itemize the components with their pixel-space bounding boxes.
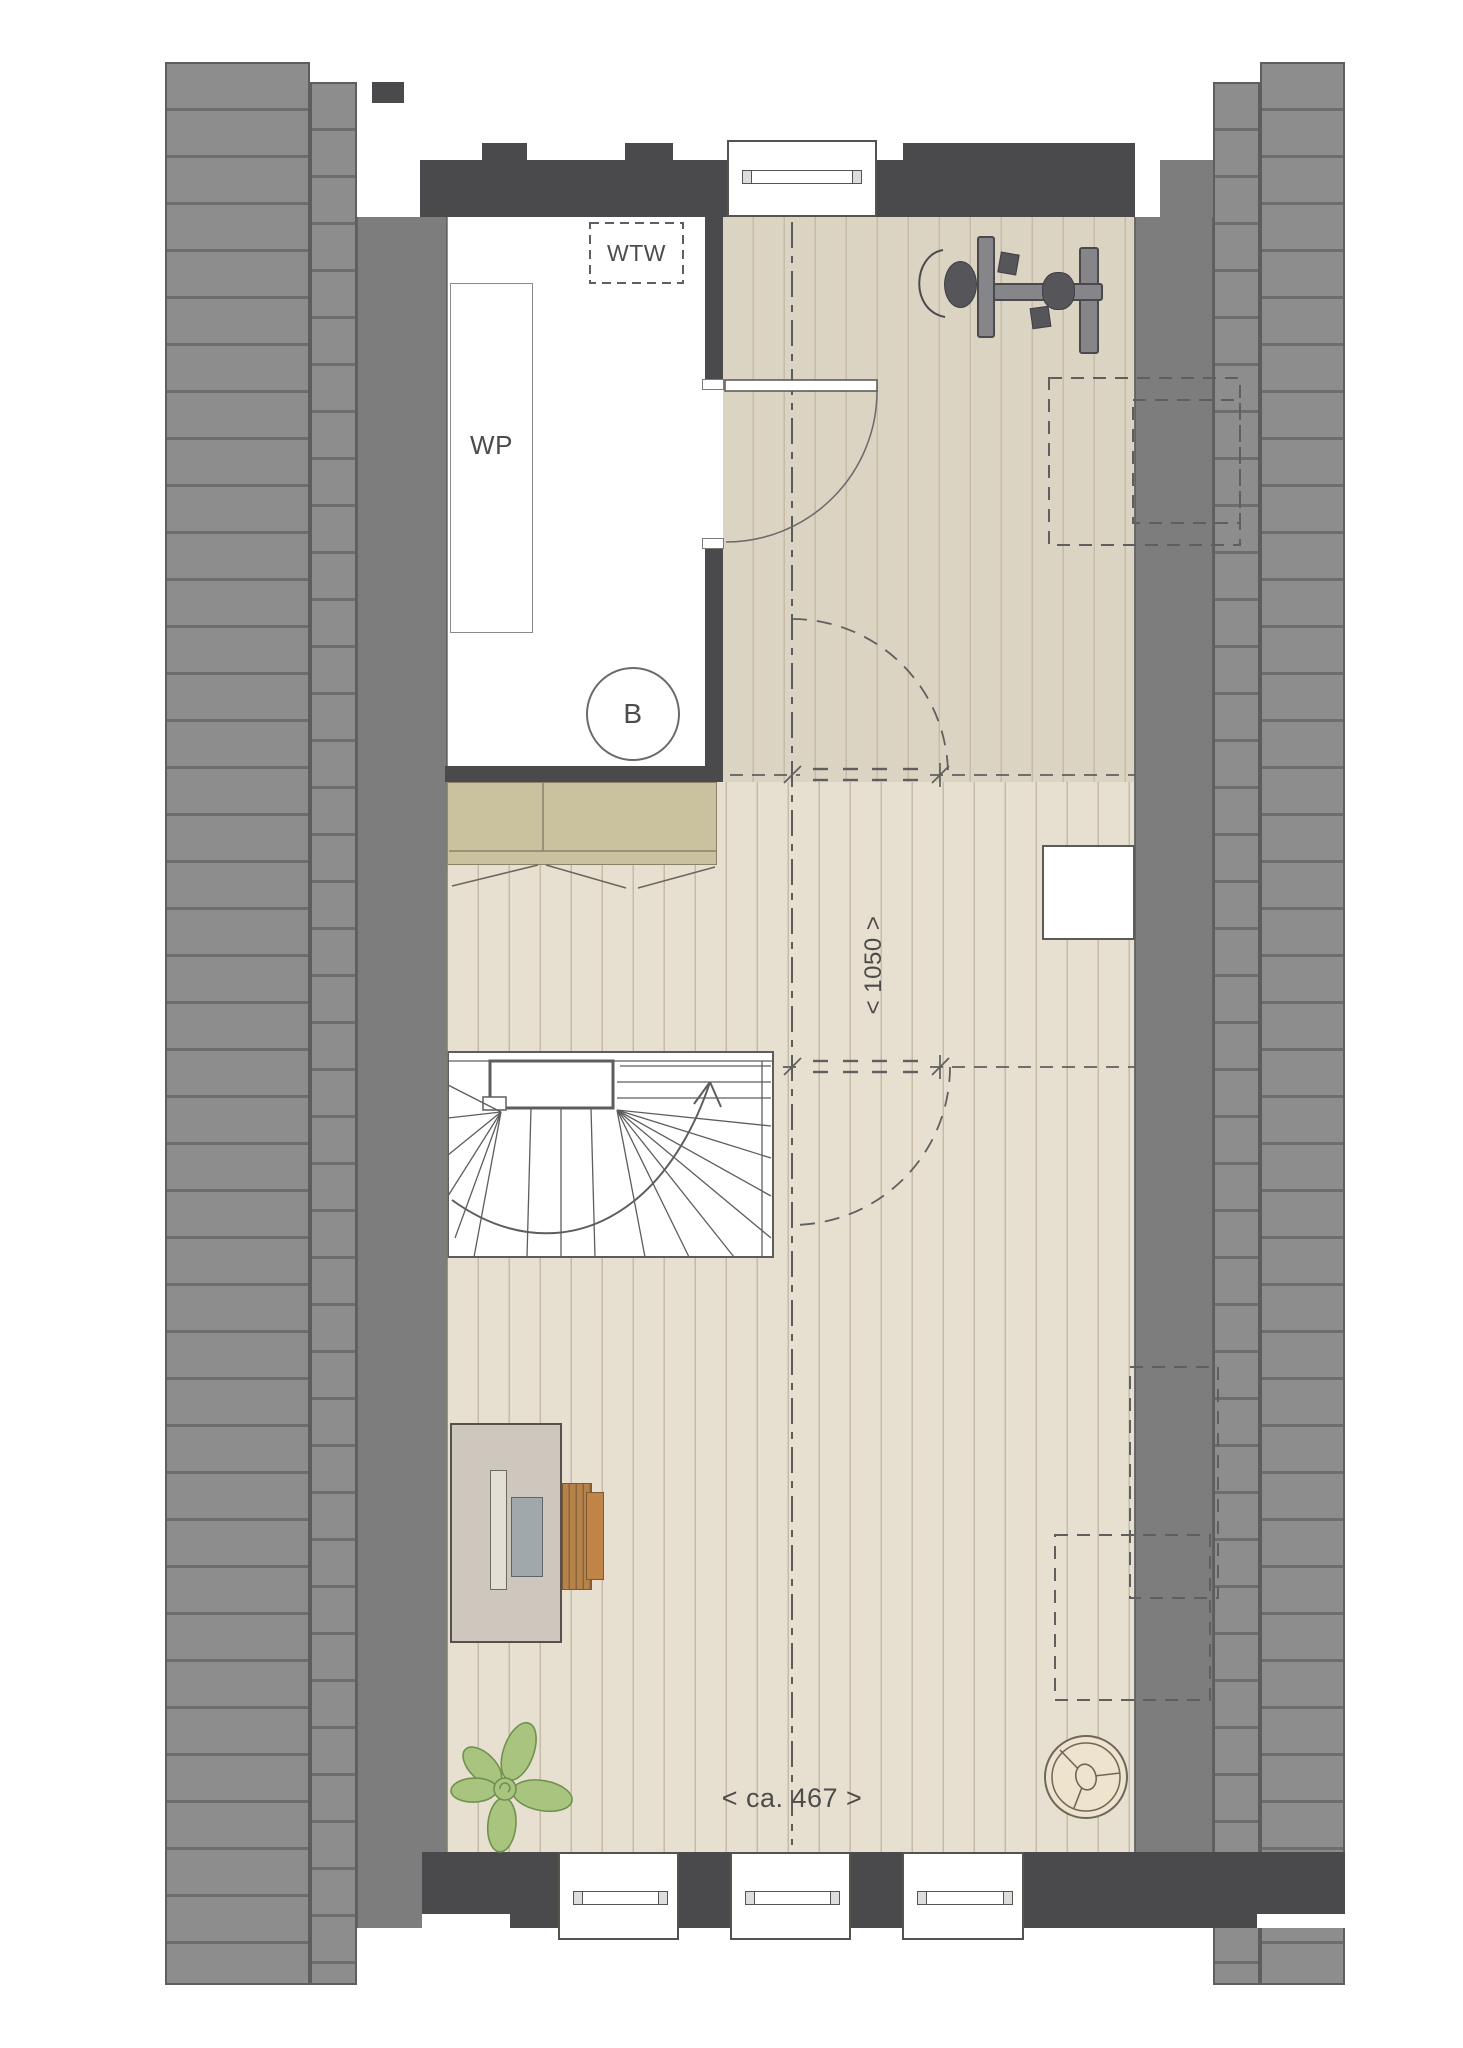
window-bottom-3-jamb-right: [1003, 1891, 1013, 1905]
top-wall-notch-2: [625, 143, 673, 160]
wp-label: WP: [450, 428, 533, 462]
window-bottom-3: [902, 1852, 1024, 1940]
party-wall-stub-top-left: [372, 82, 404, 103]
desk-screen: [511, 1497, 543, 1577]
window-bottom-2-jamb-left: [745, 1891, 755, 1905]
bottom-wall-notch-left: [422, 1914, 510, 1928]
window-bottom-2-jamb-right: [830, 1891, 840, 1905]
boiler-label: B: [586, 667, 680, 761]
exercise-bike-pedal-right: [1030, 306, 1052, 329]
window-bottom-1-glazing-bar: [573, 1891, 668, 1905]
window-bottom-3-glazing-bar: [917, 1891, 1013, 1905]
room-width-dimension: < ca. 467 >: [692, 1782, 892, 1814]
window-bottom-1-jamb-right: [658, 1891, 668, 1905]
chair-seat: [586, 1492, 604, 1580]
roof-slope-left-outer: [165, 62, 310, 1985]
top-wall-notch-1: [482, 143, 527, 160]
technical-room-bottom-wall: [445, 766, 723, 782]
knee-wall-band-right-top: [1160, 160, 1213, 217]
roof-slope-right-outer: [1260, 62, 1345, 1985]
knee-wall-band-left: [357, 217, 447, 1928]
window-bottom-2-glazing-bar: [745, 1891, 840, 1905]
exercise-bike-body: [1042, 272, 1075, 310]
technical-room-right-wall-lower: [705, 548, 723, 782]
window-top: [727, 140, 877, 217]
floorplan-attic-page: WTW WP B < 1050 > < ca. 467 >: [0, 0, 1463, 2048]
exercise-bike-seat: [944, 261, 977, 308]
window-bottom-2: [730, 1852, 851, 1940]
floor-area-upper: [723, 217, 1135, 782]
closet: [447, 782, 717, 865]
top-wall-right-segment: [877, 160, 1135, 217]
exercise-bike-pedal-left: [997, 252, 1019, 276]
bottom-wall-notch-right: [1257, 1914, 1345, 1928]
window-bottom-1: [558, 1852, 679, 1940]
top-wall-left-segment: [420, 160, 727, 217]
top-wall-notch-3: [903, 143, 1135, 160]
wtw-label: WTW: [590, 223, 683, 283]
window-top-jamb-right: [852, 170, 862, 184]
door-jamb-bottom: [702, 538, 724, 549]
window-top-jamb-left: [742, 170, 752, 184]
window-top-glazing-bar: [742, 170, 862, 184]
door-jamb-top: [702, 379, 724, 390]
window-bottom-1-jamb-left: [573, 1891, 583, 1905]
roof-slope-left-inner: [310, 82, 357, 1985]
headroom-depth-dimension: < 1050 >: [860, 895, 888, 1035]
floor-area-lower: [447, 782, 1135, 1852]
desk-monitor-strip: [490, 1470, 507, 1590]
side-table: [1042, 845, 1135, 940]
technical-room-right-wall-upper: [705, 217, 723, 388]
window-bottom-3-jamb-left: [917, 1891, 927, 1905]
roof-slope-right-inner: [1213, 82, 1260, 1985]
knee-wall-band-right: [1135, 217, 1213, 1928]
